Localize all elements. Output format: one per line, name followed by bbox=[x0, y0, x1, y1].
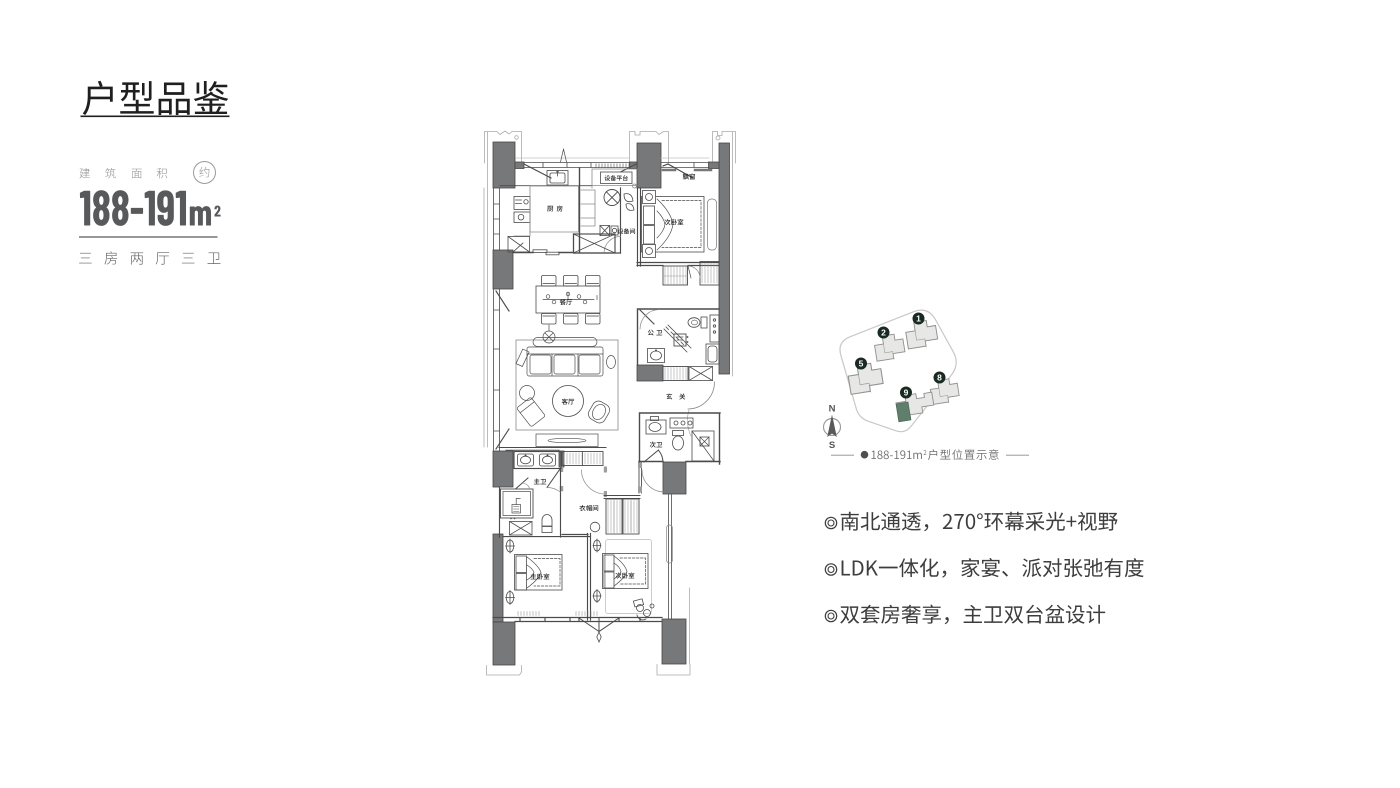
svg-text:S: S bbox=[829, 440, 835, 451]
svg-text:8: 8 bbox=[937, 373, 942, 383]
svg-text:5: 5 bbox=[859, 359, 864, 369]
svg-text:1: 1 bbox=[916, 314, 921, 324]
svg-text:9: 9 bbox=[904, 388, 909, 398]
svg-text:2: 2 bbox=[881, 328, 886, 338]
svg-text:N: N bbox=[829, 404, 836, 415]
